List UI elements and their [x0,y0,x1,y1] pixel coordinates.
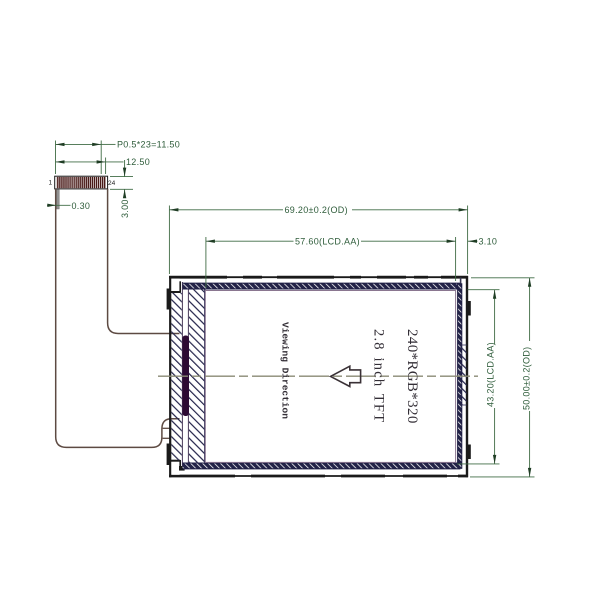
svg-text:P0.5*23=11.50: P0.5*23=11.50 [117,140,180,150]
svg-text:2.8 inch TFT: 2.8 inch TFT [371,329,387,423]
svg-text:12.50: 12.50 [126,157,150,167]
svg-text:69.20±0.2(OD): 69.20±0.2(OD) [285,205,348,215]
svg-text:3.10: 3.10 [479,237,498,247]
svg-text:Viewing Direction: Viewing Direction [280,322,291,419]
svg-text:24: 24 [108,180,116,187]
svg-text:0.30: 0.30 [72,201,91,211]
svg-text:240*RGB*320: 240*RGB*320 [404,329,420,424]
svg-text:3.00: 3.00 [120,199,130,218]
svg-text:57.60(LCD.AA): 57.60(LCD.AA) [295,237,360,247]
svg-text:43.20(LCD.AA): 43.20(LCD.AA) [486,342,496,407]
svg-text:50.00±0.2(OD): 50.00±0.2(OD) [521,347,531,410]
svg-text:1: 1 [49,180,53,187]
